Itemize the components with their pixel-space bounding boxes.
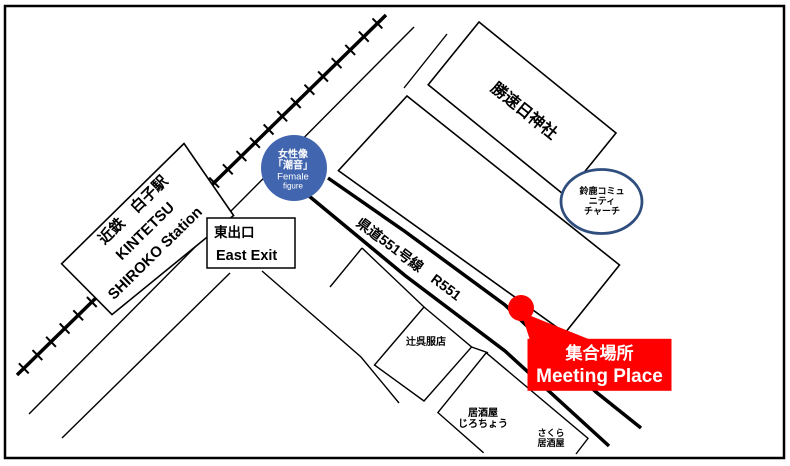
- svg-text:東出口: 東出口: [214, 224, 255, 240]
- svg-text:鈴鹿コミュ: 鈴鹿コミュ: [579, 185, 624, 196]
- svg-text:Meeting Place: Meeting Place: [536, 366, 663, 387]
- svg-text:「潮音」: 「潮音」: [273, 159, 313, 172]
- svg-text:女性像: 女性像: [278, 148, 309, 161]
- svg-text:集合場所: 集合場所: [565, 343, 634, 363]
- svg-text:East Exit: East Exit: [216, 248, 277, 264]
- svg-text:辻呉服店: 辻呉服店: [406, 335, 446, 348]
- svg-text:じろちょう: じろちょう: [458, 418, 508, 430]
- svg-text:figure: figure: [283, 182, 304, 191]
- svg-text:居酒屋: 居酒屋: [468, 406, 498, 419]
- svg-text:さくら: さくら: [537, 428, 564, 438]
- svg-text:チャーチ: チャーチ: [584, 206, 620, 216]
- svg-text:居酒屋: 居酒屋: [537, 437, 564, 448]
- svg-text:ニティ: ニティ: [589, 196, 615, 206]
